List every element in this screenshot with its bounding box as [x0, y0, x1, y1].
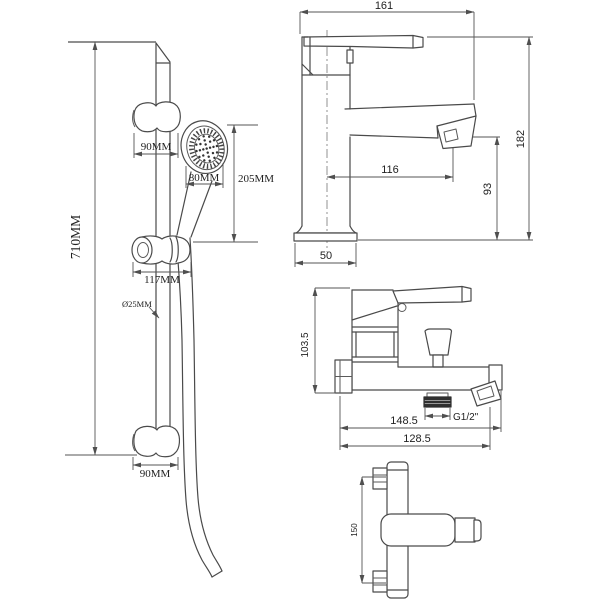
- bath-mixer-body: [335, 287, 502, 408]
- dim-label-head-length: 205MM: [238, 173, 274, 185]
- basin-mixer-body: [294, 36, 476, 242]
- dims-bath-mixer-side: 103.5 G1/2" 148.5 128.5: [300, 288, 501, 450]
- bath-mixer-side-view: 103.5 G1/2" 148.5 128.5: [300, 287, 502, 451]
- dim-label-connector-spacing: 150: [350, 523, 359, 537]
- dim-label-rail-diameter: Ø25MM: [122, 299, 152, 309]
- dim-label-overall-width: 161: [375, 0, 393, 12]
- dim-label-overall-length: 148.5: [390, 415, 418, 427]
- dim-label-head-diameter: 80MM: [189, 172, 220, 184]
- bottom-bracket: [133, 426, 180, 457]
- shower-rail-assembly: 710MM 90MM 80MM 205MM 117MM Ø25MM 90MM: [65, 42, 274, 577]
- fixtures-dimension-drawing: 710MM 90MM 80MM 205MM 117MM Ø25MM 90MM: [0, 0, 600, 600]
- hand-shower-head: [176, 116, 233, 179]
- dim-label-bottom-bracket-width: 90MM: [140, 468, 171, 480]
- shower-hose: [176, 236, 222, 577]
- technical-drawing-page: 710MM 90MM 80MM 205MM 117MM Ø25MM 90MM: [0, 0, 600, 600]
- dim-label-length-to-outlet: 128.5: [403, 433, 431, 445]
- bath-mixer-top-view: 150: [350, 462, 481, 598]
- dim-label-outlet-thread: G1/2": [453, 412, 479, 423]
- basin-mixer: 161 116 93 182 50: [294, 0, 533, 267]
- dim-label-body-height: 103.5: [300, 332, 311, 357]
- dim-label-rail-length: 710MM: [68, 215, 83, 259]
- dim-label-overall-height: 182: [515, 130, 527, 148]
- threaded-outlet: [424, 397, 451, 407]
- bath-mixer-top-body: [373, 462, 481, 598]
- dim-label-spout-reach: 116: [381, 164, 399, 176]
- slider-holder: [132, 236, 190, 264]
- dim-label-top-bracket-width: 90MM: [141, 141, 172, 153]
- dim-label-spout-height: 93: [482, 183, 494, 195]
- dim-label-holder-width: 117MM: [144, 274, 180, 286]
- dim-label-base-width: 50: [320, 250, 332, 262]
- top-bracket: [133, 102, 181, 132]
